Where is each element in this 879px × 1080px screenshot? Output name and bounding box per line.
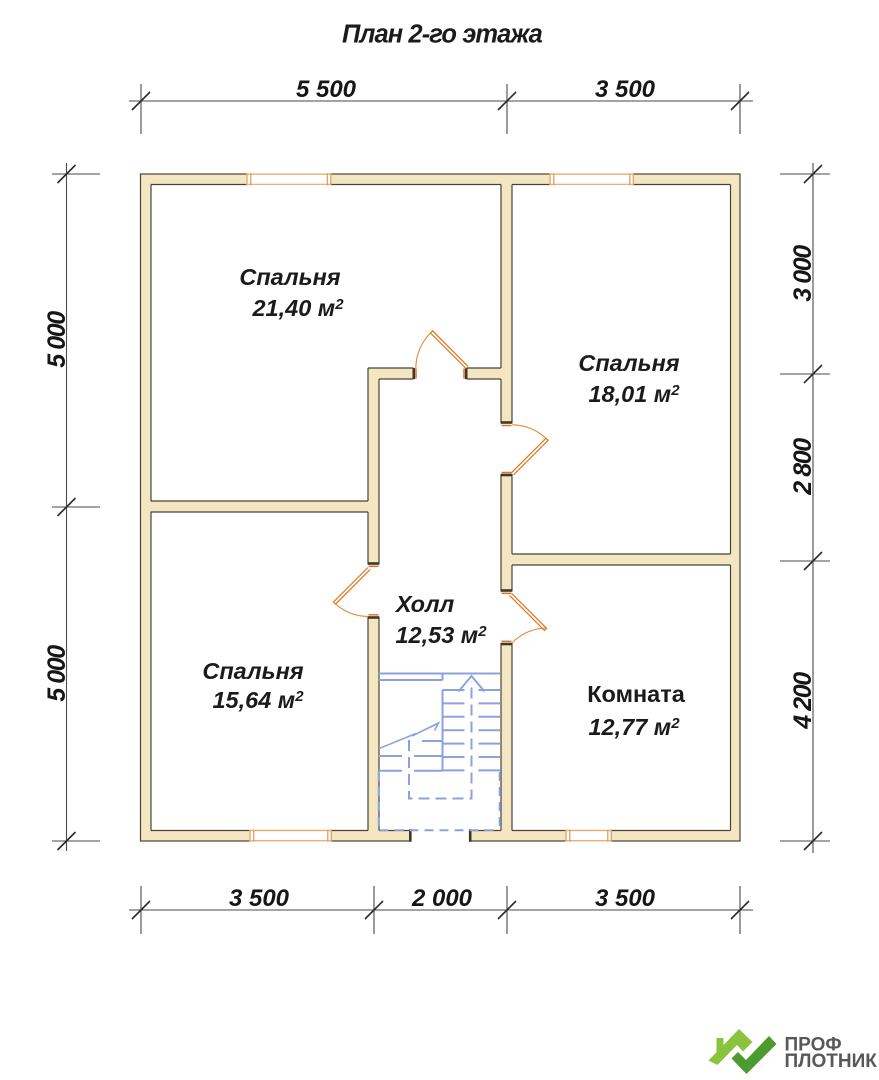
svg-text:План 2-го этажа: План 2-го этажа bbox=[342, 21, 543, 49]
svg-text:5 000: 5 000 bbox=[43, 645, 71, 702]
svg-text:Спальня: Спальня bbox=[578, 350, 679, 376]
svg-text:2 000: 2 000 bbox=[411, 885, 473, 912]
svg-text:3 500: 3 500 bbox=[595, 885, 656, 912]
svg-text:Холл: Холл bbox=[394, 591, 455, 617]
svg-text:Спальня: Спальня bbox=[202, 658, 303, 684]
svg-text:12,53 м2: 12,53 м2 bbox=[395, 622, 487, 648]
svg-text:4 200: 4 200 bbox=[789, 672, 817, 730]
svg-text:21,40 м2: 21,40 м2 bbox=[251, 295, 344, 321]
svg-text:5 000: 5 000 bbox=[43, 311, 71, 368]
svg-text:Комната: Комната bbox=[587, 681, 686, 707]
svg-text:3 500: 3 500 bbox=[229, 885, 290, 912]
svg-text:12,77 м2: 12,77 м2 bbox=[588, 714, 680, 740]
svg-text:2 800: 2 800 bbox=[789, 438, 817, 496]
svg-text:5 500: 5 500 bbox=[296, 76, 357, 103]
svg-text:3 500: 3 500 bbox=[595, 76, 656, 103]
svg-text:15,64 м2: 15,64 м2 bbox=[212, 687, 304, 713]
svg-text:3 000: 3 000 bbox=[789, 245, 817, 302]
svg-text:ПЛОТНИК: ПЛОТНИК bbox=[785, 1051, 878, 1072]
svg-text:18,01 м2: 18,01 м2 bbox=[588, 381, 680, 407]
svg-text:Спальня: Спальня bbox=[239, 264, 340, 290]
